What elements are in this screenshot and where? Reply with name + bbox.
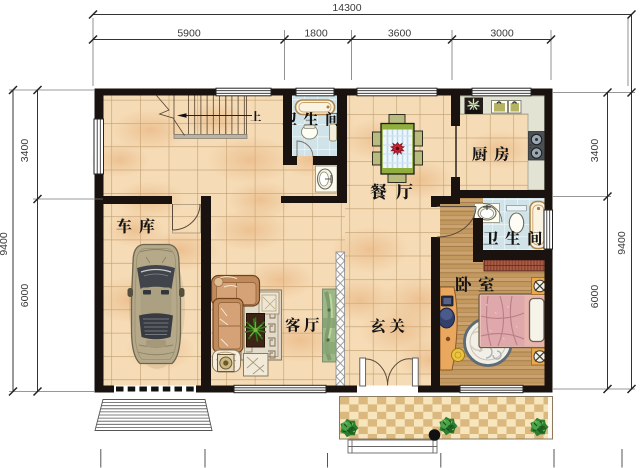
svg-text:3400: 3400: [19, 139, 31, 163]
svg-text:6000: 6000: [589, 285, 601, 309]
svg-text:6000: 6000: [19, 284, 31, 308]
svg-text:1800: 1800: [304, 28, 328, 40]
svg-text:9400: 9400: [616, 231, 628, 255]
svg-text:14300: 14300: [332, 2, 361, 14]
svg-text:3400: 3400: [589, 139, 601, 163]
svg-text:3000: 3000: [490, 28, 514, 40]
svg-text:3600: 3600: [388, 28, 412, 40]
svg-text:9400: 9400: [0, 232, 10, 256]
svg-text:5900: 5900: [177, 28, 201, 40]
